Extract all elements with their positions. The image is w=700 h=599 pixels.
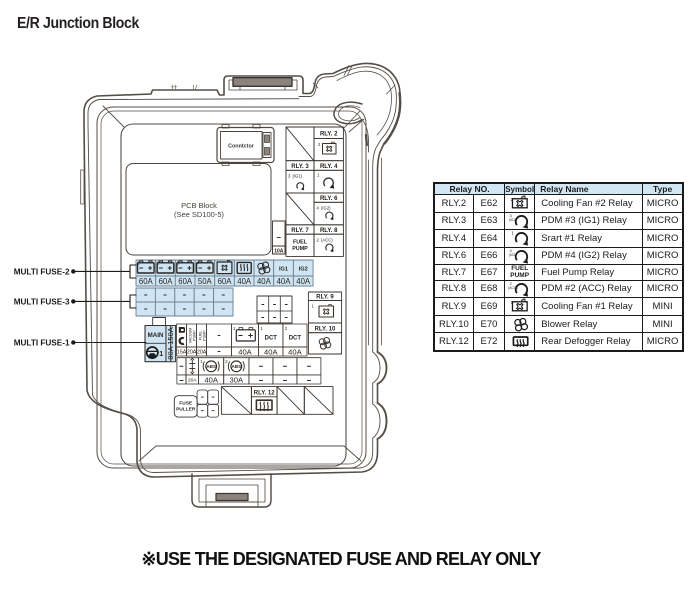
svg-text:RLY. 7: RLY. 7 — [291, 228, 309, 234]
svg-text:MULTI FUSE-3: MULTI FUSE-3 — [14, 297, 70, 306]
svg-text:40A: 40A — [296, 277, 311, 286]
svg-text:2: 2 — [317, 238, 320, 243]
svg-text:RLY. 2: RLY. 2 — [320, 131, 338, 137]
svg-text:RLY. 9: RLY. 9 — [316, 295, 334, 301]
svg-text:1: 1 — [200, 359, 203, 364]
svg-text:PUMP: PUMP — [203, 330, 207, 341]
svg-text:60A: 60A — [218, 277, 233, 286]
svg-text:40A: 40A — [264, 347, 278, 356]
svg-text:2: 2 — [225, 359, 228, 364]
svg-text:20A: 20A — [188, 378, 197, 384]
svg-text:IG1: IG1 — [279, 266, 288, 272]
svg-text:40A: 40A — [238, 347, 252, 356]
svg-text:MAIN: MAIN — [148, 332, 164, 339]
svg-text:1: 1 — [260, 326, 263, 331]
svg-text:1: 1 — [159, 349, 163, 358]
svg-text:ABS: ABS — [231, 364, 241, 369]
svg-text:(ACC): (ACC) — [321, 238, 333, 243]
svg-text:1: 1 — [312, 304, 315, 309]
svg-text:60A: 60A — [159, 277, 174, 286]
svg-text:150A: 150A — [166, 327, 175, 345]
svg-text:RLY. 3: RLY. 3 — [291, 164, 309, 170]
svg-text:RLY. 4: RLY. 4 — [320, 164, 338, 170]
svg-text:2: 2 — [285, 326, 288, 331]
svg-text:40A: 40A — [204, 376, 218, 385]
svg-text:FUSE: FUSE — [179, 401, 193, 407]
svg-text:PUMP: PUMP — [292, 246, 308, 252]
svg-text:20A: 20A — [197, 350, 207, 356]
svg-text:MULTI FUSE-1: MULTI FUSE-1 — [14, 338, 70, 347]
svg-text:60A: 60A — [178, 277, 193, 286]
svg-text:80A: 80A — [166, 346, 175, 359]
svg-text:RLY. 10: RLY. 10 — [315, 326, 336, 332]
svg-text:3: 3 — [288, 174, 291, 179]
svg-text:40A: 40A — [277, 277, 292, 286]
svg-text:1: 1 — [317, 173, 320, 178]
svg-text:20A: 20A — [187, 350, 197, 356]
svg-text:PUMP: PUMP — [193, 330, 197, 341]
svg-text:RLY. 8: RLY. 8 — [320, 228, 338, 234]
svg-text:40A: 40A — [257, 277, 272, 286]
svg-text:RLY. 12: RLY. 12 — [254, 391, 275, 397]
svg-text:(IG1): (IG1) — [293, 174, 303, 179]
svg-text:(See SD100-5): (See SD100-5) — [174, 210, 225, 219]
svg-text:50A: 50A — [198, 277, 213, 286]
svg-text:40A: 40A — [288, 347, 302, 356]
svg-text:RLY. 6: RLY. 6 — [320, 196, 338, 202]
svg-text:DCT: DCT — [289, 336, 302, 342]
svg-text:30A: 30A — [230, 376, 244, 385]
svg-text:ABS: ABS — [206, 364, 216, 369]
svg-text:60A: 60A — [139, 277, 154, 286]
svg-text:10A: 10A — [274, 248, 284, 254]
svg-text:15A: 15A — [177, 350, 187, 356]
svg-text:1: 1 — [233, 326, 236, 331]
svg-text:DCT: DCT — [265, 336, 278, 342]
svg-text:IG2: IG2 — [299, 266, 308, 272]
svg-text:40A: 40A — [237, 277, 252, 286]
svg-text:PCB Block: PCB Block — [181, 201, 217, 210]
svg-text:2: 2 — [318, 142, 321, 147]
svg-text:Conntctor: Conntctor — [228, 144, 255, 150]
svg-text:FUEL: FUEL — [293, 240, 308, 246]
svg-text:(IG2): (IG2) — [321, 206, 331, 211]
svg-text:1: 1 — [511, 231, 514, 236]
svg-text:MULTI FUSE-2: MULTI FUSE-2 — [14, 267, 70, 276]
svg-text:PULLER: PULLER — [176, 407, 196, 413]
svg-text:4: 4 — [317, 206, 320, 211]
